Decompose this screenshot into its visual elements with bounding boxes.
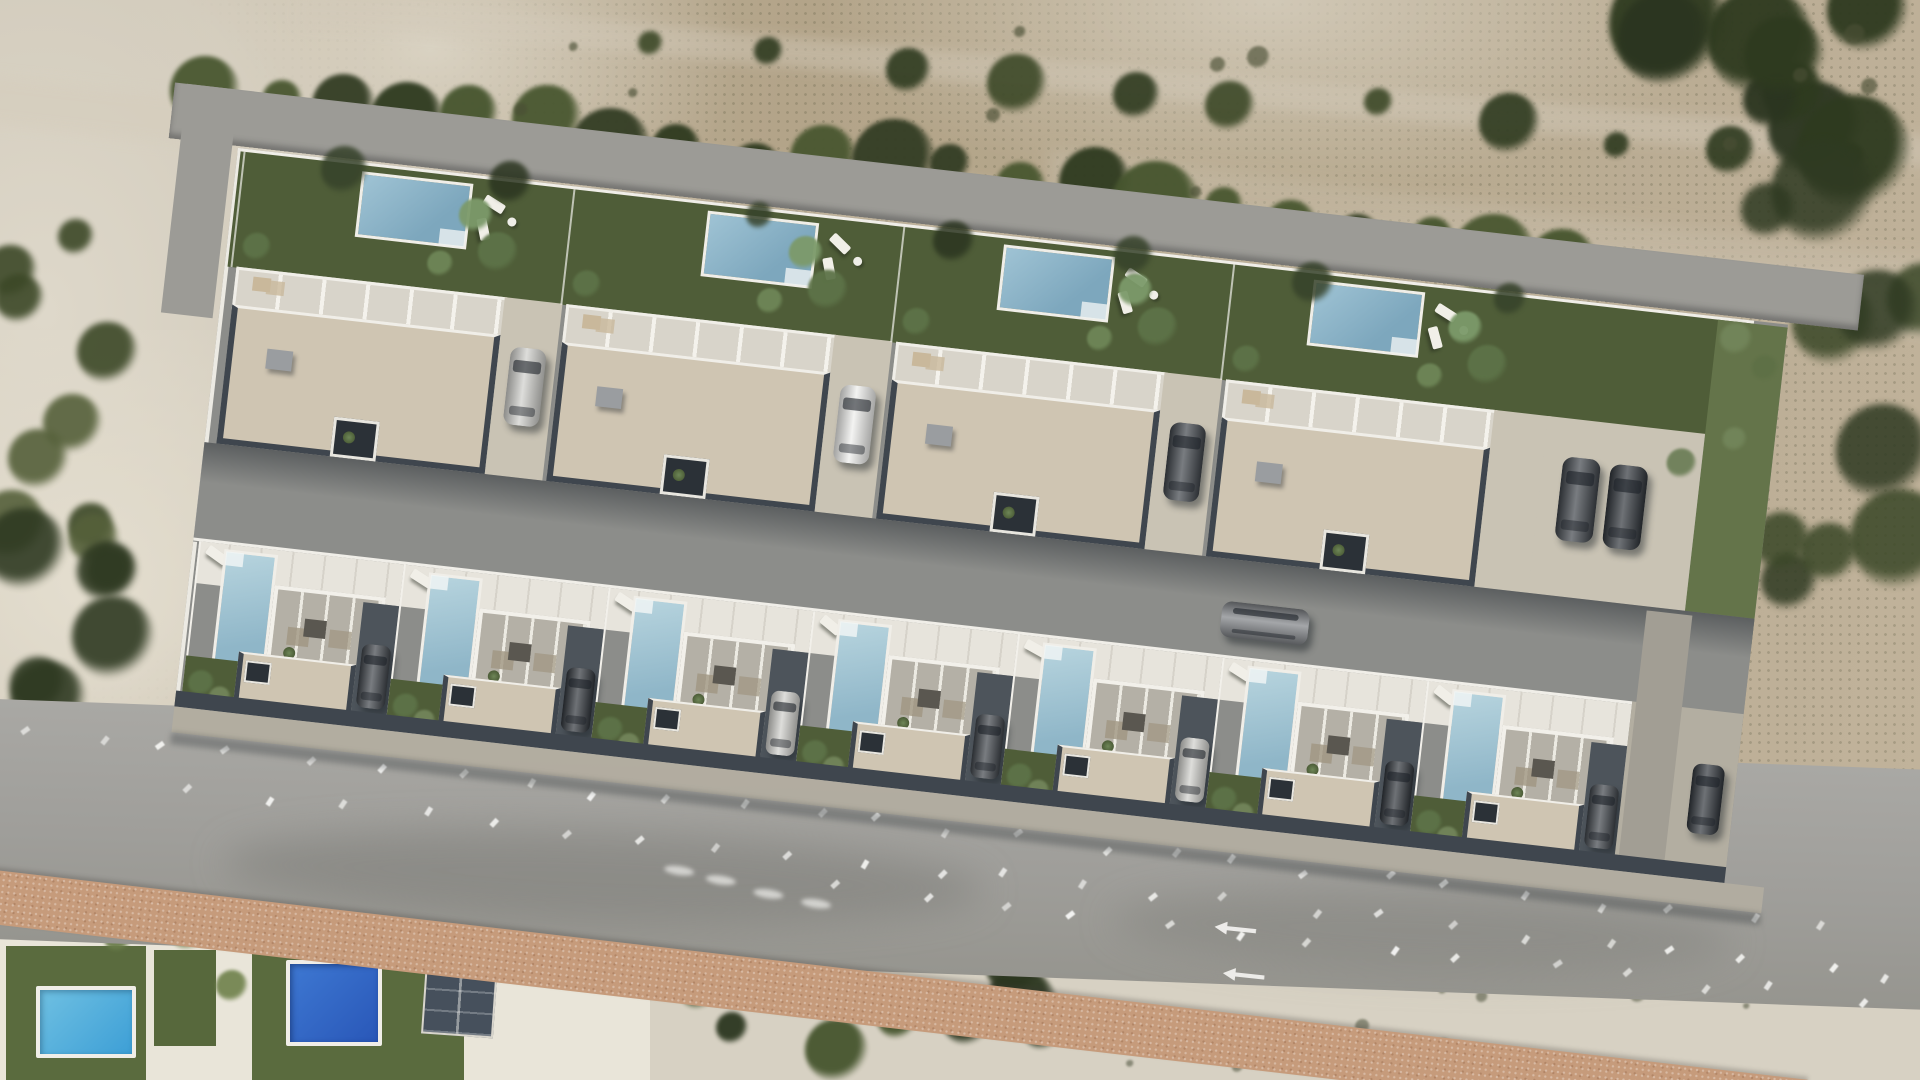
scrub-bush bbox=[1292, 262, 1334, 304]
scrub-bush bbox=[746, 202, 773, 229]
scrub-bush bbox=[1494, 283, 1527, 316]
scrub-bush bbox=[489, 161, 532, 204]
aerial-render-scene bbox=[0, 0, 1920, 1080]
scrub-bush bbox=[321, 146, 369, 194]
scrub-bush bbox=[1114, 236, 1153, 275]
tree-overhang-layer bbox=[0, 0, 1920, 1080]
scrub-bush bbox=[933, 221, 975, 263]
